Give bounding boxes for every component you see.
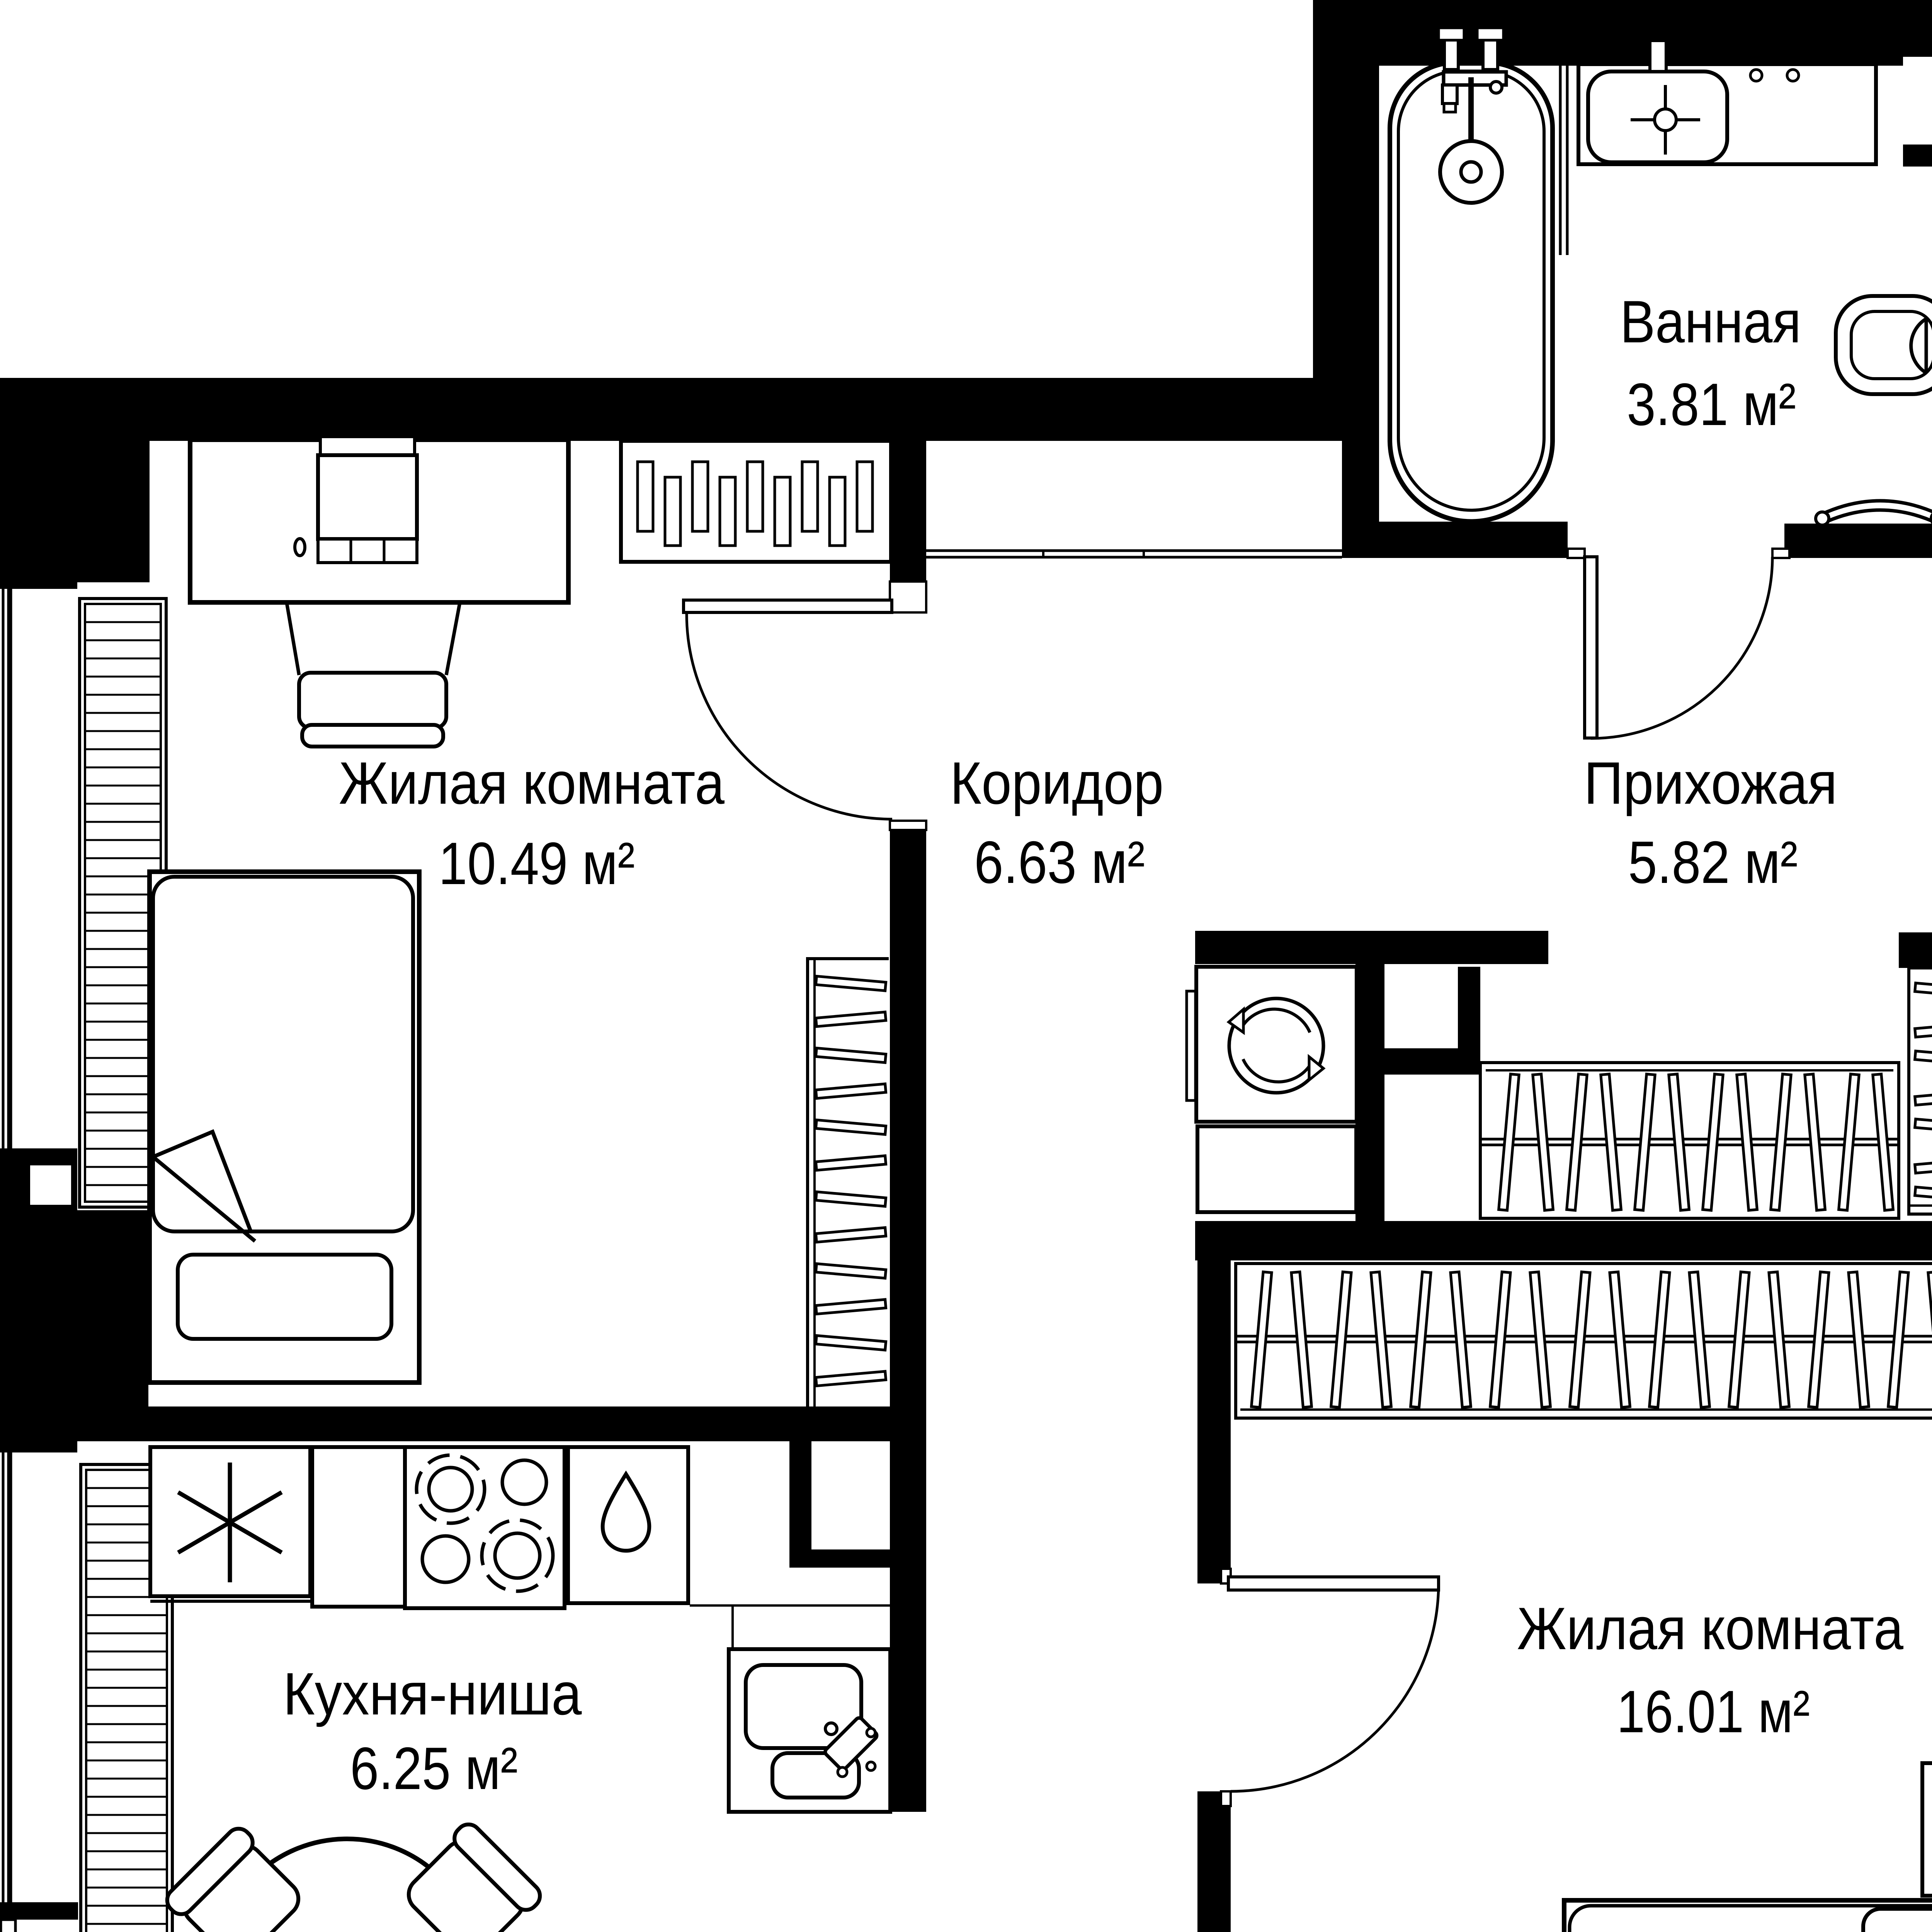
svg-text:5.82 м²: 5.82 м² (1628, 829, 1798, 896)
svg-text:6.63 м²: 6.63 м² (974, 829, 1145, 896)
svg-text:10.49 м²: 10.49 м² (439, 830, 635, 897)
svg-text:Ванная: Ванная (1620, 288, 1801, 355)
svg-text:Прихожая: Прихожая (1584, 750, 1837, 816)
svg-text:Коридор: Коридор (950, 750, 1164, 816)
svg-text:6.25 м²: 6.25 м² (350, 1735, 518, 1802)
svg-text:Жилая комната: Жилая комната (1517, 1595, 1904, 1662)
svg-text:Жилая комната: Жилая комната (339, 750, 725, 816)
svg-text:3.81 м²: 3.81 м² (1627, 371, 1796, 438)
svg-text:16.01 м²: 16.01 м² (1617, 1678, 1810, 1745)
svg-text:Кухня-ниша: Кухня-ниша (283, 1660, 582, 1727)
